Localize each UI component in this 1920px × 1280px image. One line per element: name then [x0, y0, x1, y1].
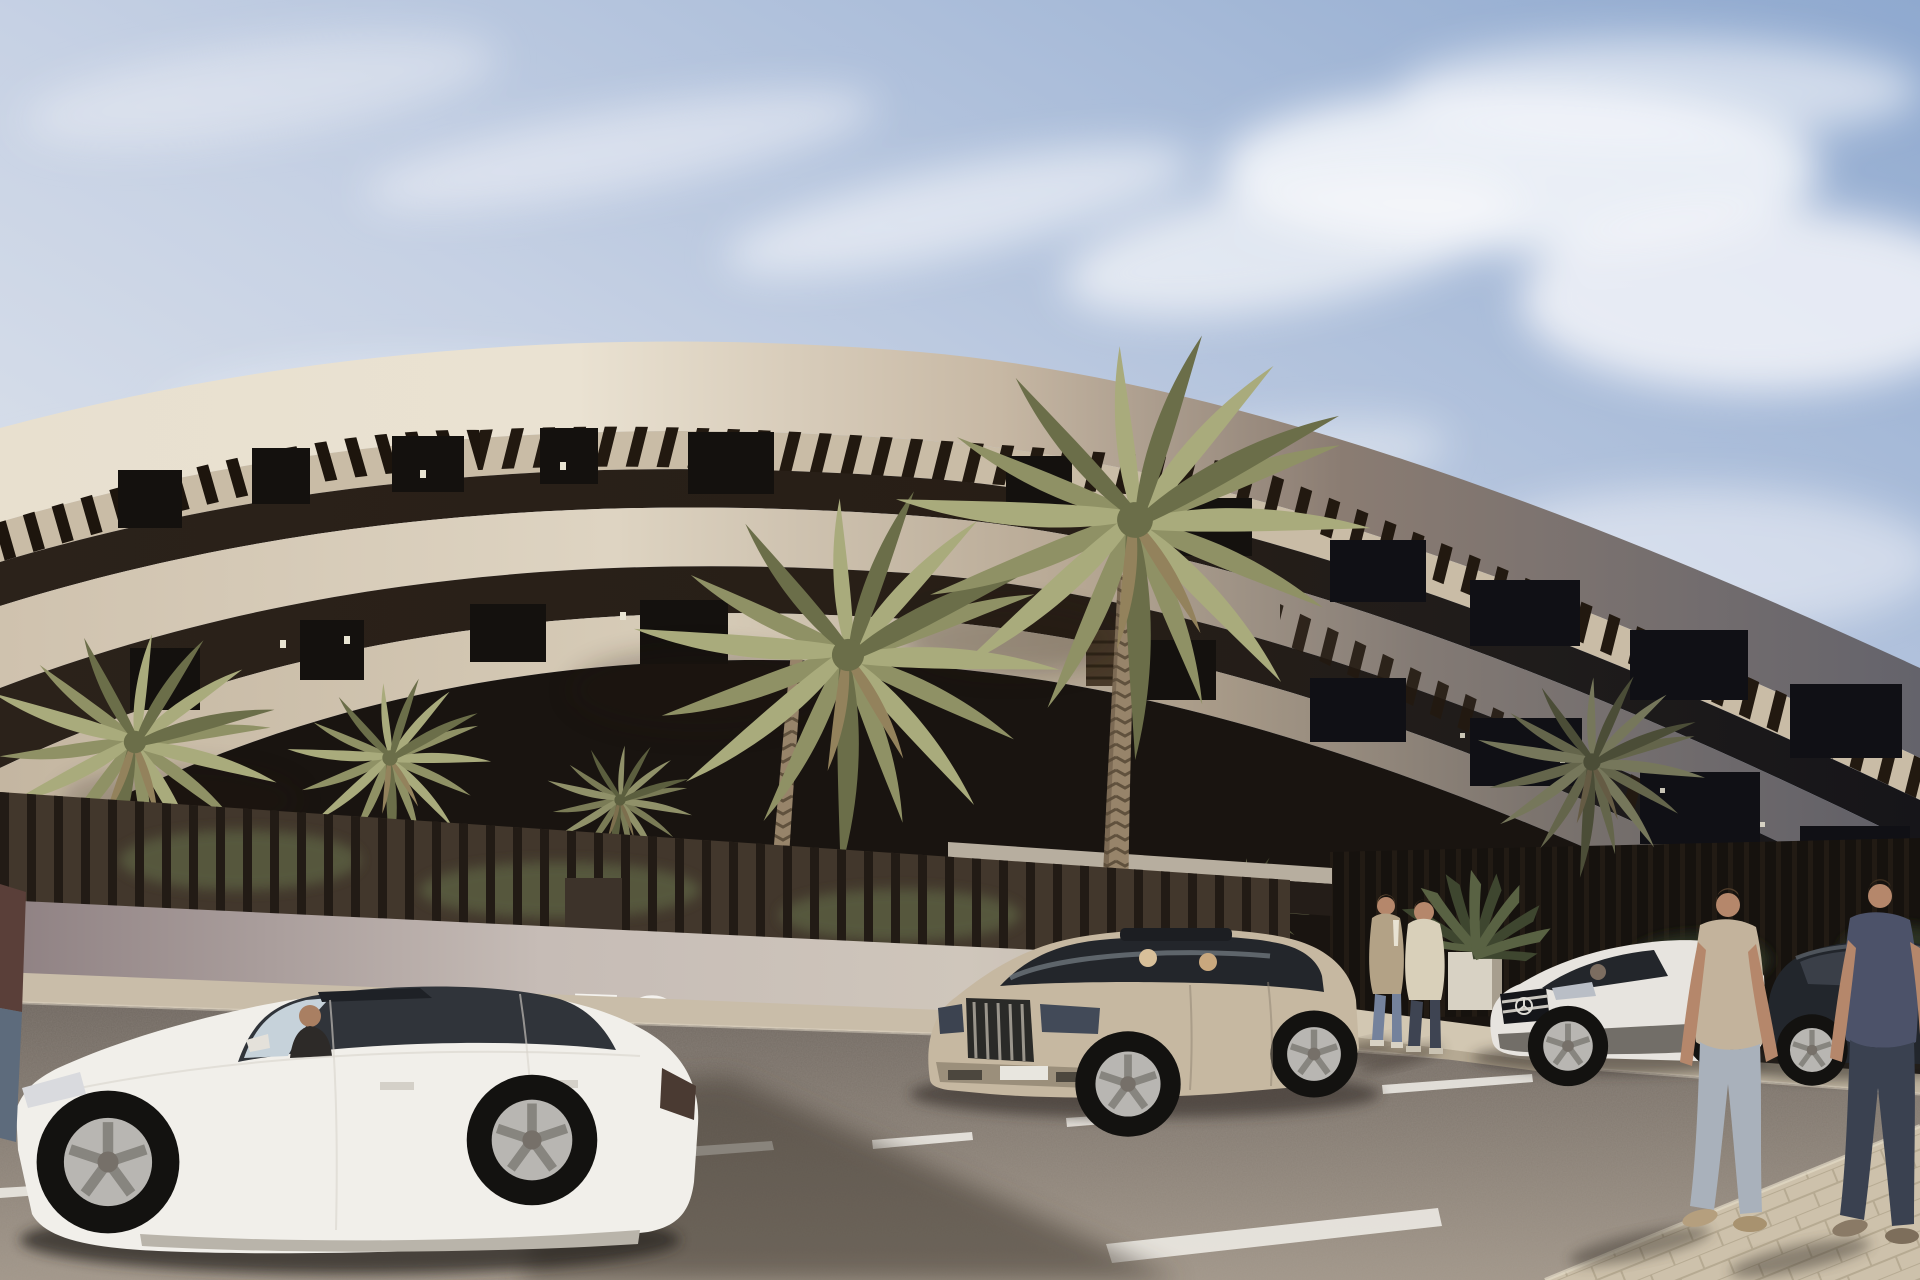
suv-driver-head [1139, 949, 1157, 967]
sweater [1405, 919, 1445, 1000]
head [1377, 897, 1395, 915]
tshirt-navy [1844, 912, 1918, 1048]
torso [0, 884, 26, 1012]
shirt [1393, 920, 1399, 946]
scene-canvas: TO [0, 0, 1920, 1280]
shoe [1885, 1228, 1919, 1244]
sedan-driver-head [299, 1005, 321, 1027]
head [1716, 893, 1740, 917]
suv-headlight-right [1040, 1004, 1100, 1034]
render-image: TO [0, 0, 1920, 1280]
suv-passenger-head [1199, 953, 1217, 971]
shoe [1733, 1216, 1767, 1232]
suv-headlight-left [938, 1004, 964, 1034]
license-plate [1000, 1066, 1048, 1080]
head [1868, 884, 1892, 908]
driver-head [1590, 964, 1606, 980]
sunroof [1120, 928, 1232, 941]
